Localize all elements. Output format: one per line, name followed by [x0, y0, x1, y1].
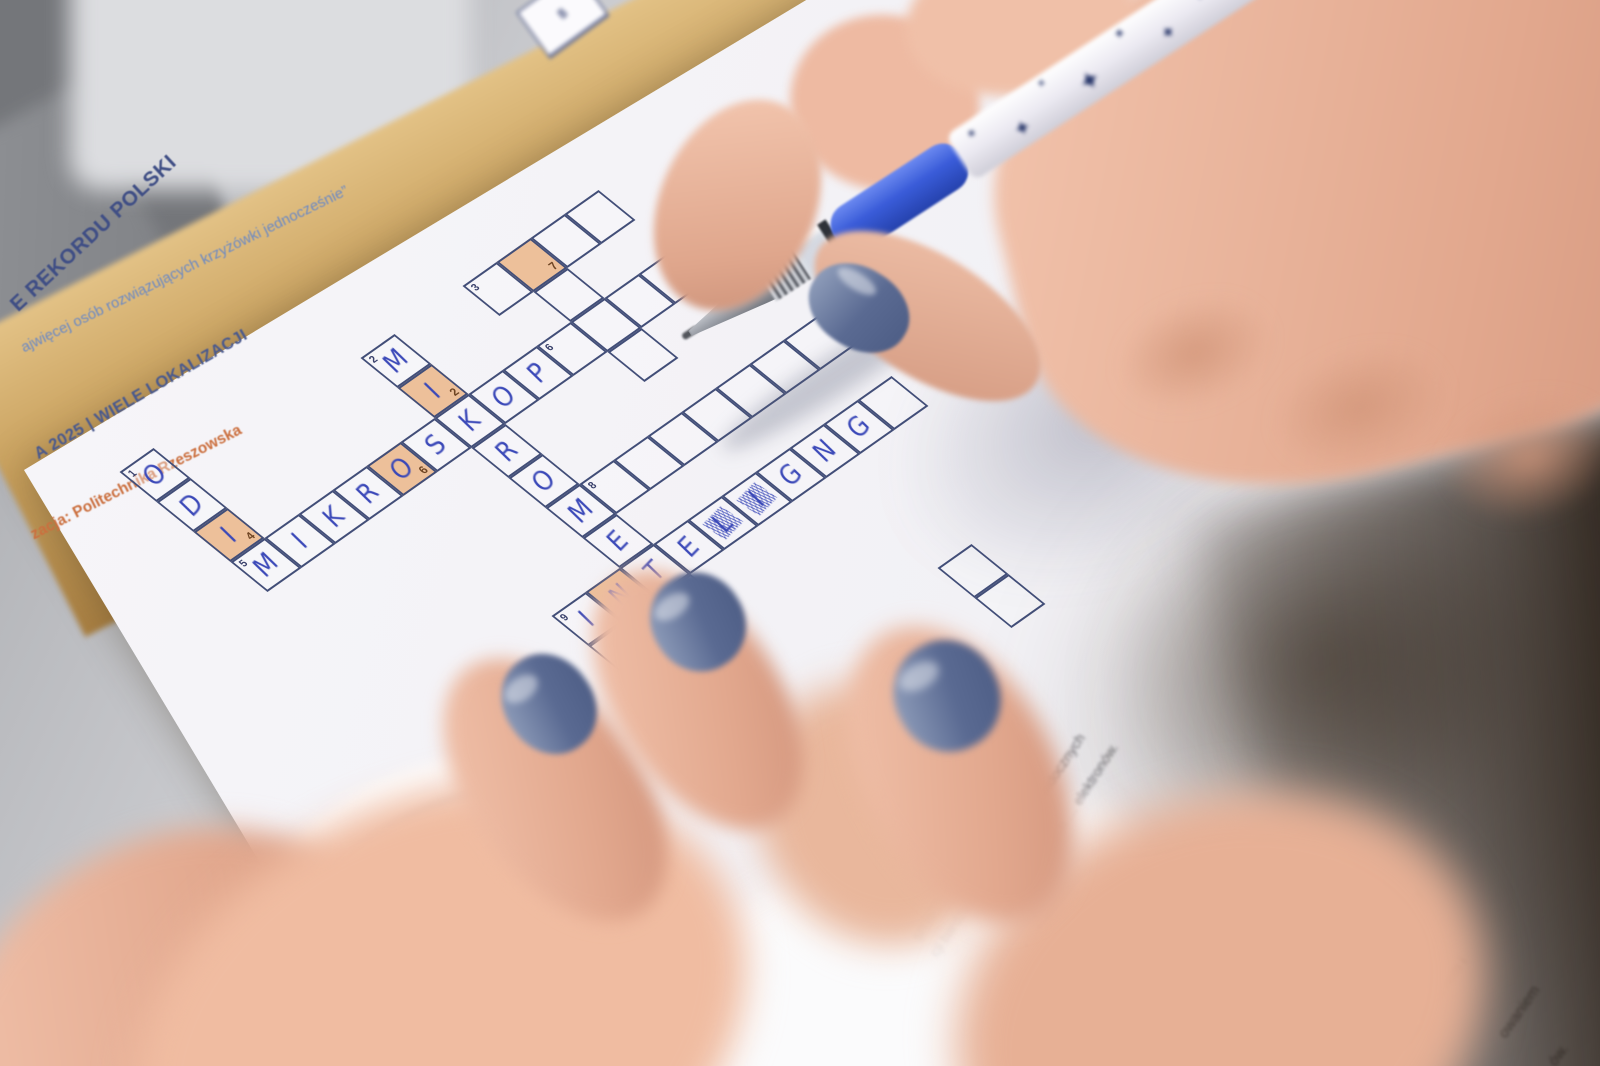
clue-number: 6: [543, 342, 557, 353]
star-icon: ✦: [1112, 25, 1127, 41]
star-icon: ✦: [1037, 79, 1047, 90]
clue-number: 8: [586, 480, 600, 491]
clue-number: 3: [469, 282, 483, 293]
star-icon: ✦: [1157, 21, 1180, 44]
card-number-value: 8: [554, 5, 571, 22]
star-icon: ✦: [1185, 0, 1213, 8]
star-icon: ✦: [1073, 64, 1107, 99]
star-icon: ✦: [1011, 116, 1035, 142]
star-icon: ✦: [963, 125, 980, 142]
photo-scene: E REKORDU POLSKI ajwięcej osób rozwiązuj…: [0, 0, 1600, 1066]
